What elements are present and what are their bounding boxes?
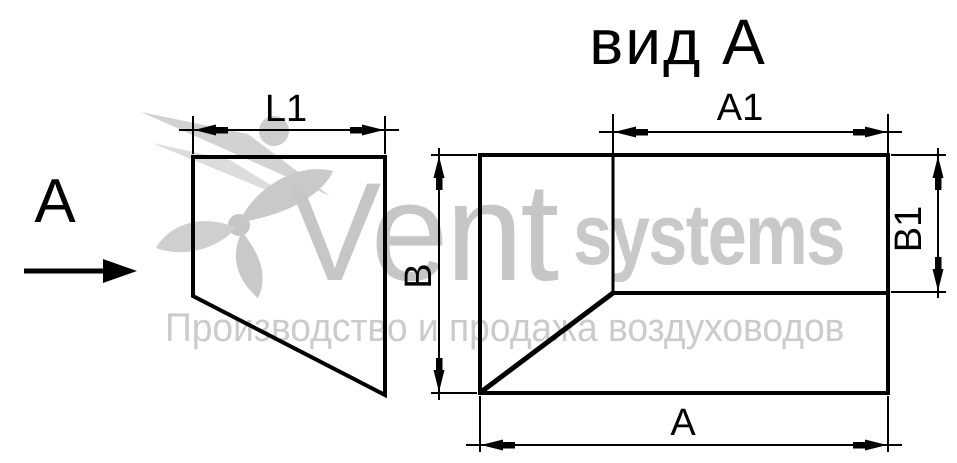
drawing (0, 0, 957, 463)
dimension-b1 (891, 148, 946, 298)
transition-diagonal-edge (481, 293, 613, 392)
dimension-b (431, 148, 477, 400)
front-view-outline (480, 155, 888, 393)
view-direction-arrow-icon (24, 259, 137, 283)
dimension-a (466, 396, 902, 452)
technical-drawing-canvas: Vent systems Производство и продажа возд… (0, 0, 957, 463)
dimension-l1 (179, 116, 399, 154)
side-view-outline (193, 157, 385, 395)
dimension-a1 (599, 114, 902, 153)
